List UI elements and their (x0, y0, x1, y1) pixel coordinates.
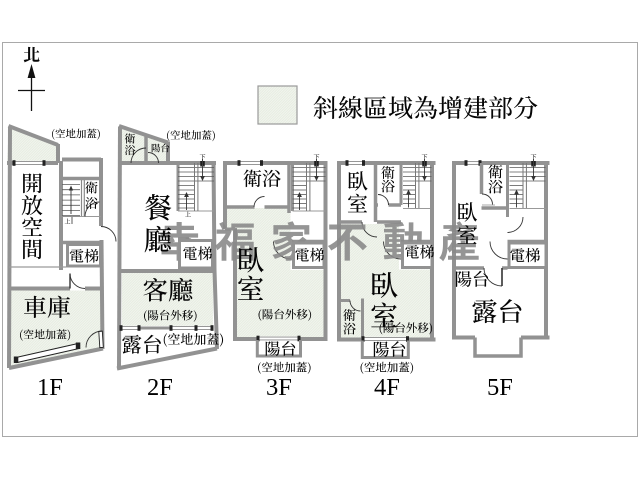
svg-text:4F: 4F (374, 374, 400, 401)
svg-text:2F: 2F (147, 374, 173, 401)
svg-text:3F: 3F (266, 374, 292, 401)
svg-text:5F: 5F (487, 374, 513, 401)
svg-text:1F: 1F (37, 374, 63, 401)
